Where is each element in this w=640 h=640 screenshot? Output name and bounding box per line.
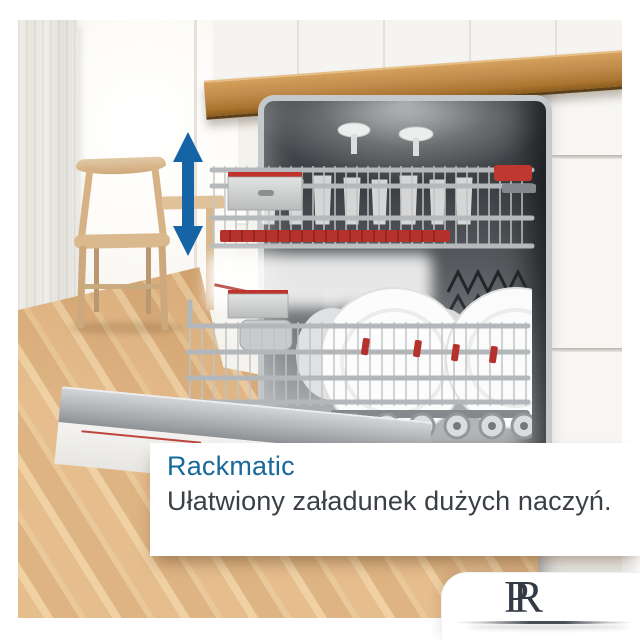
plate-red-trim [228, 172, 302, 177]
feature-title: Rackmatic [167, 451, 295, 482]
monogram-letter-r: R [513, 572, 543, 622]
chair-leg [146, 242, 151, 314]
product-feature-image: { "caption": { "title": "Rackmatic", "su… [0, 0, 640, 640]
brand-monogram: PR [504, 575, 543, 620]
brand-plate [228, 294, 288, 318]
red-handle [494, 165, 532, 181]
height-adjust-arrow-icon [168, 132, 208, 256]
upper-rack [204, 118, 540, 274]
logo-underline-swoosh-icon [454, 621, 634, 624]
chair-leg [94, 242, 99, 312]
dining-chair-seat [74, 233, 170, 249]
chair-stretcher [82, 284, 164, 289]
feature-subtitle: Ułatwiony załadunek dużych naczyń. [167, 486, 612, 517]
plate-red-trim [228, 290, 288, 294]
rack-rail [502, 184, 536, 193]
feature-caption-panel: Rackmatic Ułatwiony załadunek dużych nac… [150, 443, 640, 556]
brand-logo-chip: PR [441, 572, 640, 640]
swoosh-shadow [468, 625, 628, 629]
